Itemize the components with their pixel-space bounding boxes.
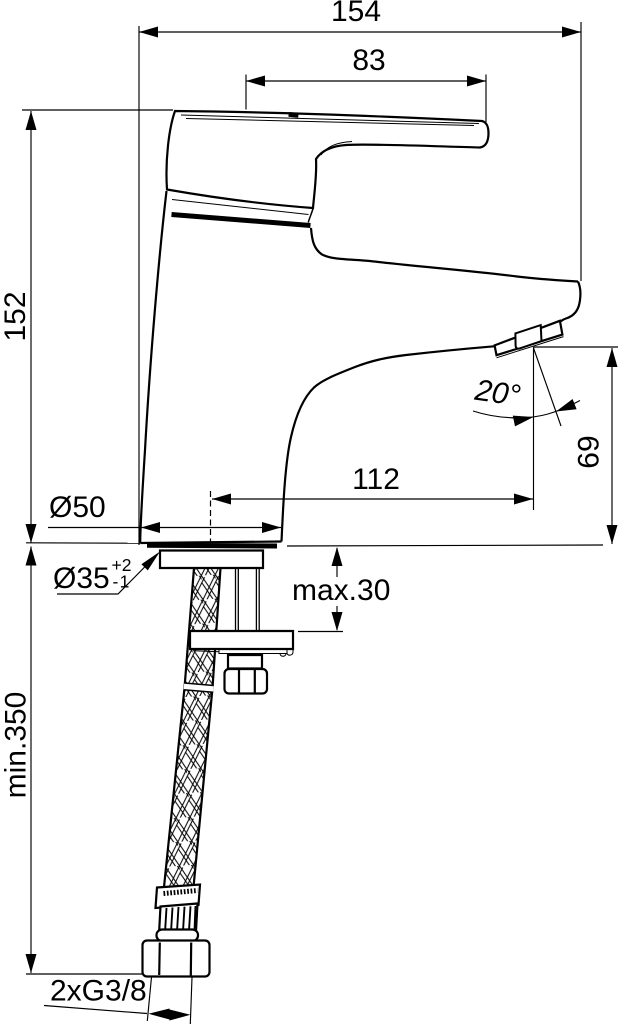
svg-text:112: 112 xyxy=(352,463,400,496)
svg-text:69: 69 xyxy=(573,435,606,468)
svg-text:83: 83 xyxy=(352,44,385,77)
svg-text:152: 152 xyxy=(0,291,32,341)
svg-text:2xG3/8: 2xG3/8 xyxy=(50,975,147,1008)
svg-text:min.350: min.350 xyxy=(0,692,33,799)
svg-text:-1: -1 xyxy=(113,572,131,592)
svg-text:Ø50: Ø50 xyxy=(49,491,106,524)
svg-text:20°: 20° xyxy=(472,374,523,413)
svg-text:Ø35: Ø35 xyxy=(53,562,110,595)
svg-text:max.30: max.30 xyxy=(292,574,390,607)
svg-text:154: 154 xyxy=(331,0,381,28)
